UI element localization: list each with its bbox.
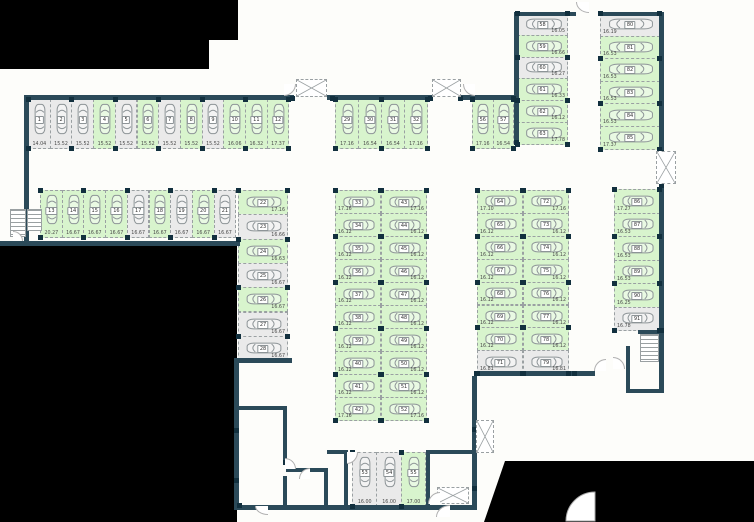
- parking-space-24[interactable]: 2416.63: [238, 239, 288, 264]
- space-area: 16.67: [84, 231, 105, 236]
- pillar: [424, 372, 429, 377]
- pillar: [234, 478, 239, 483]
- space-number: 18: [154, 207, 165, 215]
- space-area: 16.27: [551, 72, 565, 77]
- parking-space-13[interactable]: 1320.27: [40, 190, 63, 238]
- pillar: [236, 285, 241, 290]
- space-area: 16.12: [410, 391, 424, 396]
- space-number: 42: [352, 406, 363, 414]
- wall: [598, 12, 663, 16]
- parking-space-68[interactable]: 6816.12: [477, 282, 523, 306]
- space-area: 20.27: [41, 231, 62, 236]
- parking-space-2[interactable]: 215.52: [50, 99, 73, 149]
- space-number: 39: [352, 337, 363, 345]
- parking-space-23[interactable]: 2316.66: [238, 214, 288, 239]
- space-area: 17.16: [473, 142, 493, 147]
- parking-space-55[interactable]: 5517.00: [401, 452, 426, 507]
- space-number: 41: [352, 383, 363, 391]
- space-area: 17.78: [551, 138, 565, 143]
- space-area: 16.12: [480, 276, 494, 281]
- parking-space-65[interactable]: 6516.12: [477, 213, 523, 237]
- wall: [0, 241, 240, 246]
- wall: [626, 346, 630, 393]
- space-number: 68: [494, 290, 505, 298]
- parking-space-36[interactable]: 3616.12: [335, 259, 381, 283]
- pillar: [379, 97, 384, 102]
- pillar: [200, 146, 205, 151]
- shaft-icon: [656, 151, 676, 184]
- space-number: 61: [537, 86, 548, 94]
- parking-space-5[interactable]: 515.52: [115, 99, 138, 149]
- pillar: [424, 280, 429, 285]
- space-number: 36: [352, 268, 363, 276]
- pillar: [113, 97, 118, 102]
- space-area: 16.12: [480, 344, 494, 349]
- parking-space-81[interactable]: 8116.53: [600, 36, 660, 60]
- outside-area: [209, 0, 238, 40]
- pillar: [333, 234, 338, 239]
- wall: [324, 472, 328, 509]
- shaft-icon: [437, 487, 469, 504]
- parking-space-30[interactable]: 3016.54: [358, 99, 382, 149]
- parking-space-44[interactable]: 4416.12: [381, 213, 427, 237]
- pillar: [156, 97, 161, 102]
- space-number: 71: [494, 359, 505, 367]
- parking-space-73[interactable]: 7316.12: [523, 213, 569, 237]
- door-arc: [284, 84, 296, 96]
- parking-space-57[interactable]: 5716.54: [493, 99, 515, 149]
- parking-space-7[interactable]: 715.52: [158, 99, 181, 149]
- pillar: [612, 281, 617, 286]
- space-number: 72: [540, 198, 551, 206]
- space-area: 16.78: [617, 324, 631, 329]
- pillar: [657, 234, 662, 239]
- pillar: [521, 234, 526, 239]
- parking-space-42[interactable]: 4217.16: [335, 397, 381, 421]
- space-area: 16.12: [338, 345, 352, 350]
- space-number: 64: [494, 198, 505, 206]
- pillar: [379, 418, 384, 423]
- wall: [234, 358, 292, 363]
- parking-space-22[interactable]: 2217.16: [238, 190, 288, 215]
- space-area: 16.67: [215, 231, 236, 236]
- parking-space-61[interactable]: 6116.33: [517, 78, 568, 101]
- parking-space-85[interactable]: 8517.37: [600, 126, 660, 150]
- wall: [659, 333, 664, 393]
- pillar: [515, 11, 520, 16]
- space-area: 17.10: [480, 207, 494, 212]
- space-area: 17.27: [617, 207, 631, 212]
- space-area: 16.53: [603, 120, 617, 125]
- pillar: [379, 280, 384, 285]
- parking-space-84[interactable]: 8416.53: [600, 103, 660, 127]
- pillar: [168, 188, 173, 193]
- space-area: 16.12: [338, 299, 352, 304]
- parking-space-16[interactable]: 1616.67: [105, 190, 128, 238]
- space-number: 13: [46, 207, 57, 215]
- space-number: 75: [540, 267, 551, 275]
- space-number: 7: [165, 116, 173, 124]
- parking-space-66[interactable]: 6616.12: [477, 236, 523, 260]
- pillar: [598, 147, 603, 152]
- pillar: [659, 328, 664, 333]
- wall: [234, 358, 239, 510]
- space-area: 16.12: [552, 344, 566, 349]
- space-number: 2: [57, 116, 65, 124]
- space-area: 15.52: [116, 142, 137, 147]
- parking-space-60[interactable]: 6016.27: [517, 57, 568, 80]
- pillar: [333, 326, 338, 331]
- space-number: 40: [352, 360, 363, 368]
- parking-space-47[interactable]: 4716.12: [381, 282, 427, 306]
- parking-space-41[interactable]: 4116.12: [335, 374, 381, 398]
- space-number: 4: [100, 116, 108, 124]
- space-area: 16.53: [603, 52, 617, 57]
- space-number: 47: [398, 291, 409, 299]
- space-number: 1: [35, 116, 43, 124]
- parking-space-8[interactable]: 815.52: [180, 99, 203, 149]
- space-number: 50: [398, 360, 409, 368]
- pillar: [236, 334, 241, 339]
- space-number: 91: [631, 315, 642, 323]
- space-number: 22: [257, 199, 268, 207]
- space-number: 86: [631, 198, 642, 206]
- pillar: [285, 285, 290, 290]
- space-number: 84: [624, 112, 635, 120]
- parking-space-91[interactable]: 9116.78: [614, 307, 660, 332]
- parking-space-18[interactable]: 1816.67: [149, 190, 172, 238]
- pillar: [470, 97, 475, 102]
- space-area: 15.52: [138, 142, 159, 147]
- pillar: [212, 188, 217, 193]
- wall: [283, 476, 287, 509]
- space-area: 16.12: [410, 299, 424, 304]
- space-area: 16.12: [480, 321, 494, 326]
- parking-space-33[interactable]: 3317.16: [335, 190, 381, 214]
- space-number: 32: [410, 116, 421, 124]
- space-area: 17.37: [268, 142, 289, 147]
- space-number: 46: [398, 268, 409, 276]
- pillar: [333, 280, 338, 285]
- parking-space-86[interactable]: 8617.27: [614, 189, 660, 214]
- parking-space-12[interactable]: 1217.37: [267, 99, 290, 149]
- pillar: [657, 56, 662, 61]
- parking-space-89[interactable]: 8916.53: [614, 260, 660, 285]
- space-number: 33: [352, 199, 363, 207]
- parking-space-25[interactable]: 2516.67: [238, 263, 288, 288]
- parking-space-49[interactable]: 4916.12: [381, 328, 427, 352]
- space-number: 25: [257, 272, 268, 280]
- parking-space-87[interactable]: 8716.53: [614, 213, 660, 238]
- parking-space-54[interactable]: 5416.00: [376, 452, 401, 507]
- space-area: 16.12: [410, 345, 424, 350]
- pillar: [379, 146, 384, 151]
- pillar: [474, 371, 479, 376]
- parking-space-90[interactable]: 9016.25: [614, 283, 660, 308]
- parking-space-59[interactable]: 5916.66: [517, 35, 568, 58]
- space-number: 10: [229, 116, 240, 124]
- pillar: [333, 418, 338, 423]
- parking-space-52[interactable]: 5217.16: [381, 397, 427, 421]
- space-number: 14: [67, 207, 78, 215]
- parking-space-78[interactable]: 7816.12: [523, 327, 569, 351]
- parking-space-29[interactable]: 2917.16: [335, 99, 359, 149]
- space-area: 15.52: [181, 142, 202, 147]
- pillar: [472, 486, 477, 491]
- space-number: 8: [187, 116, 195, 124]
- space-number: 38: [352, 314, 363, 322]
- parking-space-3[interactable]: 315.52: [71, 99, 94, 149]
- space-area: 16.67: [271, 281, 285, 286]
- pillar: [565, 98, 570, 103]
- pillar: [598, 56, 603, 61]
- space-area: 16.12: [480, 230, 494, 235]
- parking-space-58[interactable]: 5816.05: [517, 13, 568, 36]
- space-area: 15.52: [72, 142, 93, 147]
- pillar: [566, 234, 571, 239]
- parking-space-83[interactable]: 8316.53: [600, 81, 660, 105]
- space-area: 17.16: [336, 142, 358, 147]
- pillar: [379, 188, 384, 193]
- pillar: [333, 372, 338, 377]
- parking-space-74[interactable]: 7416.12: [523, 236, 569, 260]
- pillar: [598, 11, 603, 16]
- parking-space-88[interactable]: 8816.53: [614, 236, 660, 261]
- space-area: 16.63: [271, 257, 285, 262]
- pillar: [125, 235, 130, 240]
- parking-space-62[interactable]: 6216.12: [517, 100, 568, 123]
- pillar: [212, 235, 217, 240]
- parking-space-64[interactable]: 6417.10: [477, 190, 523, 214]
- parking-space-69[interactable]: 6916.12: [477, 305, 523, 329]
- space-number: 11: [251, 116, 262, 124]
- pillar: [379, 326, 384, 331]
- pillar: [566, 371, 571, 376]
- outside-area: [0, 246, 237, 522]
- space-area: 16.12: [410, 322, 424, 327]
- space-area: 16.12: [480, 298, 494, 303]
- space-area: 16.12: [552, 253, 566, 258]
- space-number: 28: [257, 345, 268, 353]
- pillar: [521, 280, 526, 285]
- space-number: 19: [176, 207, 187, 215]
- space-number: 27: [257, 321, 268, 329]
- pillar: [470, 146, 475, 151]
- space-number: 49: [398, 337, 409, 345]
- parking-space-70[interactable]: 7016.12: [477, 327, 523, 351]
- space-area: 16.53: [603, 97, 617, 102]
- space-number: 56: [477, 116, 488, 124]
- pillar: [38, 188, 43, 193]
- pillar: [657, 101, 662, 106]
- space-number: 6: [144, 116, 152, 124]
- space-number: 66: [494, 244, 505, 252]
- parking-space-39[interactable]: 3916.12: [335, 328, 381, 352]
- parking-space-17[interactable]: 1716.67: [127, 190, 150, 238]
- parking-space-38[interactable]: 3816.12: [335, 305, 381, 329]
- parking-space-6[interactable]: 615.52: [137, 99, 160, 149]
- space-number: 17: [132, 207, 143, 215]
- space-area: 17.16: [410, 414, 424, 419]
- entrance-door-arc: [566, 492, 595, 521]
- pillar: [333, 146, 338, 151]
- parking-space-75[interactable]: 7516.12: [523, 259, 569, 283]
- door-arc: [613, 357, 625, 369]
- pillar: [565, 11, 570, 16]
- pillar: [330, 96, 335, 101]
- space-number: 63: [537, 130, 548, 138]
- parking-space-19[interactable]: 1916.67: [170, 190, 193, 238]
- space-number: 48: [398, 314, 409, 322]
- parking-space-14[interactable]: 1416.67: [62, 190, 85, 238]
- pillar: [399, 450, 404, 455]
- space-area: 16.12: [552, 230, 566, 235]
- pillar: [424, 234, 429, 239]
- pillar: [243, 146, 248, 151]
- space-number: 53: [359, 469, 370, 477]
- door-arc: [576, 2, 589, 13]
- stairs-icon: [27, 209, 42, 231]
- wall: [659, 12, 664, 154]
- pillar: [243, 97, 248, 102]
- space-number: 43: [398, 199, 409, 207]
- wall: [659, 186, 664, 333]
- parking-space-26[interactable]: 2616.67: [238, 287, 288, 312]
- space-area: 16.12: [410, 230, 424, 235]
- shaft-icon: [432, 79, 461, 97]
- parking-space-27[interactable]: 2716.67: [238, 312, 288, 337]
- pillar: [572, 371, 577, 376]
- space-number: 77: [540, 313, 551, 321]
- parking-space-37[interactable]: 3716.12: [335, 282, 381, 306]
- pillar: [566, 280, 571, 285]
- parking-space-48[interactable]: 4816.12: [381, 305, 427, 329]
- pillar: [285, 334, 290, 339]
- pillar: [81, 188, 86, 193]
- wall: [238, 406, 286, 410]
- parking-space-82[interactable]: 8216.53: [600, 58, 660, 82]
- pillar: [566, 188, 571, 193]
- pillar: [612, 234, 617, 239]
- pillar: [379, 234, 384, 239]
- pillar: [379, 372, 384, 377]
- parking-space-34[interactable]: 3416.12: [335, 213, 381, 237]
- space-number: 30: [364, 116, 375, 124]
- space-area: 16.19: [603, 30, 617, 35]
- space-area: 17.16: [405, 142, 427, 147]
- parking-space-31[interactable]: 3116.54: [381, 99, 405, 149]
- parking-space-51[interactable]: 5116.12: [381, 374, 427, 398]
- parking-space-40[interactable]: 4016.12: [335, 351, 381, 375]
- pillar: [200, 97, 205, 102]
- space-number: 70: [494, 336, 505, 344]
- pillar: [475, 188, 480, 193]
- space-number: 57: [498, 116, 509, 124]
- floor-plan: 114.04215.52315.52415.52515.52615.52715.…: [0, 0, 754, 522]
- pillar: [156, 146, 161, 151]
- space-number: 44: [398, 222, 409, 230]
- door-arc: [285, 458, 296, 469]
- parking-space-15[interactable]: 1516.67: [83, 190, 106, 238]
- space-area: 16.54: [359, 142, 381, 147]
- parking-space-50[interactable]: 5016.12: [381, 351, 427, 375]
- parking-space-9[interactable]: 915.52: [202, 99, 225, 149]
- parking-space-32[interactable]: 3217.16: [404, 99, 428, 149]
- parking-space-53[interactable]: 5316.00: [352, 452, 377, 507]
- space-area: 16.67: [193, 231, 214, 236]
- parking-space-56[interactable]: 5617.16: [472, 99, 494, 149]
- space-area: 16.12: [338, 322, 352, 327]
- parking-space-21[interactable]: 2116.67: [214, 190, 237, 238]
- pillar: [521, 371, 526, 376]
- space-area: 16.12: [552, 321, 566, 326]
- parking-space-35[interactable]: 3516.12: [335, 236, 381, 260]
- pillar: [399, 504, 404, 509]
- parking-space-43[interactable]: 4317.16: [381, 190, 427, 214]
- parking-space-1[interactable]: 114.04: [28, 99, 51, 149]
- pillar: [424, 188, 429, 193]
- pillar: [69, 146, 74, 151]
- space-area: 16.12: [338, 368, 352, 373]
- space-number: 20: [198, 207, 209, 215]
- wall: [430, 450, 474, 454]
- parking-space-10[interactable]: 1016.06: [223, 99, 246, 149]
- space-number: 51: [398, 383, 409, 391]
- parking-space-11[interactable]: 1116.32: [245, 99, 268, 149]
- parking-space-20[interactable]: 2016.67: [192, 190, 215, 238]
- pillar: [290, 96, 295, 101]
- space-number: 85: [624, 134, 635, 142]
- outside-area: [0, 0, 209, 69]
- pillar: [234, 428, 239, 433]
- pillar: [475, 234, 480, 239]
- pillar: [511, 96, 516, 101]
- space-area: 17.37: [603, 143, 617, 148]
- space-number: 89: [631, 268, 642, 276]
- space-area: 16.67: [171, 231, 192, 236]
- space-area: 16.12: [480, 253, 494, 258]
- space-number: 23: [257, 223, 268, 231]
- parking-space-45[interactable]: 4516.12: [381, 236, 427, 260]
- space-number: 15: [89, 207, 100, 215]
- space-area: 17.16: [271, 208, 285, 213]
- parking-space-63[interactable]: 6317.78: [517, 122, 568, 145]
- parking-space-76[interactable]: 7616.12: [523, 282, 569, 306]
- pillar: [26, 146, 31, 151]
- space-number: 24: [257, 248, 268, 256]
- space-area: 16.66: [551, 51, 565, 56]
- parking-space-46[interactable]: 4616.12: [381, 259, 427, 283]
- space-area: 16.12: [551, 116, 565, 121]
- space-number: 34: [352, 222, 363, 230]
- space-area: 15.52: [94, 142, 115, 147]
- space-number: 59: [537, 43, 548, 51]
- stairs-icon: [640, 334, 659, 362]
- wall: [283, 406, 287, 464]
- parking-space-77[interactable]: 7716.12: [523, 305, 569, 329]
- shaft-icon: [296, 79, 327, 97]
- space-number: 55: [408, 469, 419, 477]
- space-number: 90: [631, 292, 642, 300]
- pillar: [236, 188, 241, 193]
- parking-space-80[interactable]: 8016.19: [600, 13, 660, 37]
- space-area: 16.67: [128, 231, 149, 236]
- parking-space-72[interactable]: 7217.16: [523, 190, 569, 214]
- space-area: 16.33: [551, 94, 565, 99]
- pillar: [424, 418, 429, 423]
- parking-space-4[interactable]: 415.52: [93, 99, 116, 149]
- parking-space-67[interactable]: 6716.12: [477, 259, 523, 283]
